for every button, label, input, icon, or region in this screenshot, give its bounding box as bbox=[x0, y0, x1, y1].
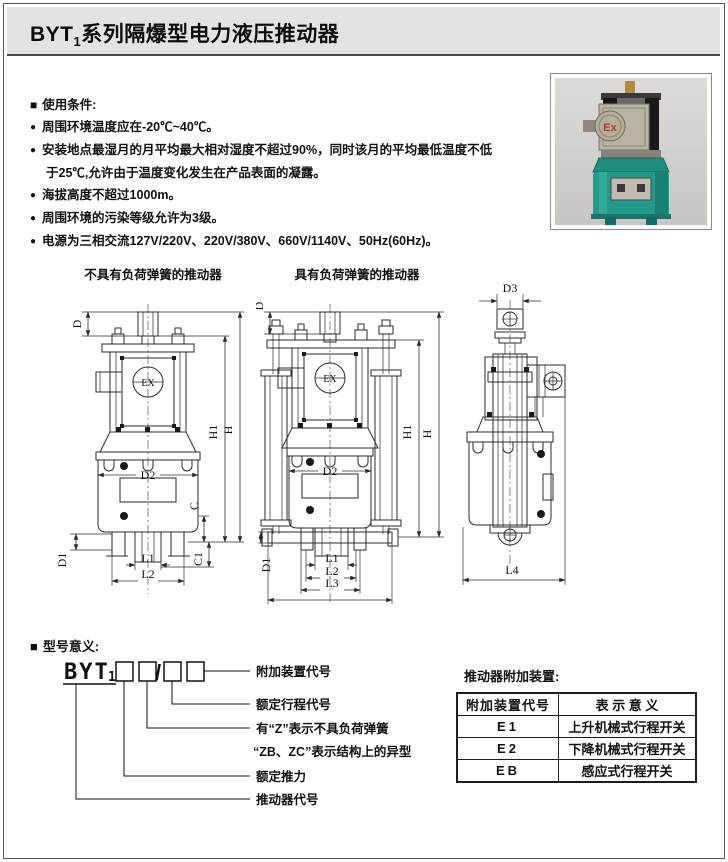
condition-item-continuation: 于25℃,允许由于温度变化发生在产品表面的凝露。 bbox=[30, 162, 555, 184]
dim-label-D3: D3 bbox=[503, 282, 518, 295]
model-label-zbzc-meaning: “ZB、ZC”表示结构上的异型 bbox=[253, 744, 412, 759]
catalog-page: BYT1系列隔爆型电力液压推动器 ■使用条件: ●周围环境温度应在-20℃~40… bbox=[0, 0, 728, 862]
model-label-stroke-code: 额定行程代号 bbox=[256, 697, 331, 712]
model-code-box bbox=[164, 662, 181, 681]
model-label-thruster-code: 推动器代号 bbox=[256, 792, 319, 807]
condition-item: ●海拔高度不超过1000m。 bbox=[30, 184, 555, 207]
dim-label-C1: C1 bbox=[191, 552, 205, 566]
drain-plug bbox=[120, 512, 128, 520]
condition-item: ●周围环境的污染等级允许为3级。 bbox=[30, 207, 555, 230]
cell-meaning: 上升机械式行程开关 bbox=[559, 716, 697, 738]
bullet-icon: ● bbox=[30, 213, 36, 224]
model-code-box bbox=[116, 662, 133, 681]
ex-circle-label: EX bbox=[323, 374, 337, 385]
diagram-with-spring: EX D2 D H H1 bbox=[256, 282, 458, 612]
dim-label-D2: D2 bbox=[323, 464, 338, 478]
accessories-section: 推动器附加装置: 附加装置代号 表 示 意 义 E1 上升机械式行程开关 E2 … bbox=[456, 666, 698, 783]
ex-marking: Ex bbox=[603, 122, 617, 134]
dim-label-D1: D1 bbox=[259, 558, 273, 573]
dim-label-L3: L3 bbox=[325, 576, 338, 590]
dim-label-D2: D2 bbox=[141, 468, 156, 482]
bullet-icon: ● bbox=[30, 145, 36, 156]
condition-item: ●周围环境温度应在-20℃~40℃。 bbox=[30, 116, 555, 139]
dim-label-L1: L1 bbox=[325, 551, 338, 565]
square-marker-icon: ■ bbox=[30, 98, 37, 112]
conditions-section: ■使用条件: ●周围环境温度应在-20℃~40℃。 ●安装地点最湿月的月平均最大… bbox=[30, 94, 555, 253]
header-meaning: 表 示 意 义 bbox=[559, 693, 697, 716]
dim-label-D1: D1 bbox=[56, 553, 69, 568]
dim-label-H1: H1 bbox=[206, 425, 220, 440]
dim-label-L1: L1 bbox=[141, 551, 154, 565]
bullet-icon: ● bbox=[30, 236, 36, 247]
cell-meaning: 下降机械式行程开关 bbox=[559, 738, 697, 760]
accessories-table: 附加装置代号 表 示 意 义 E1 上升机械式行程开关 E2 下降机械式行程开关… bbox=[456, 692, 697, 783]
product-photo: Ex bbox=[555, 78, 707, 225]
table-row: EB 感应式行程开关 bbox=[457, 760, 696, 783]
model-code-slash: / bbox=[155, 660, 161, 685]
mounting-leg bbox=[605, 217, 616, 225]
filler-plug bbox=[120, 462, 128, 470]
header-bar: BYT1系列隔爆型电力液压推动器 bbox=[7, 7, 720, 56]
condition-item: ●安装地点最湿月的月平均最大相对湿度不超过90%，同时该月的平均最低温度不低 bbox=[30, 139, 555, 162]
model-label-rated-thrust: 额定推力 bbox=[256, 769, 306, 784]
thruster-cap bbox=[593, 158, 669, 172]
diagram-no-spring: EX D2 D H H1 bbox=[56, 282, 248, 604]
dim-label-H1: H1 bbox=[400, 425, 414, 440]
model-code-box bbox=[187, 662, 204, 681]
table-row: E2 下降机械式行程开关 bbox=[457, 738, 696, 760]
dim-label-H: H bbox=[420, 429, 434, 438]
conditions-heading: ■使用条件: bbox=[30, 94, 555, 116]
brass-fitting bbox=[625, 81, 635, 94]
cell-meaning: 感应式行程开关 bbox=[559, 760, 697, 783]
square-marker-icon: ■ bbox=[30, 639, 38, 654]
model-label-z-meaning: 有“Z”表示不具负荷弹簧 bbox=[256, 721, 389, 736]
diagram-side-view: D3 bbox=[455, 282, 627, 602]
page-title: BYT1系列隔爆型电力液压推动器 bbox=[30, 18, 339, 49]
dim-label-H: H bbox=[221, 425, 235, 434]
model-code-diagram: BYT 1 / 附加装置代号 额定行程代号 有“Z”表示不具负荷弹簧 “ZB、Z… bbox=[60, 652, 450, 820]
title-suffix: 系列隔爆型电力液压推动器 bbox=[81, 23, 339, 46]
bullet-icon: ● bbox=[30, 190, 36, 201]
ex-circle-label: EX bbox=[141, 378, 155, 389]
accessories-title: 推动器附加装置: bbox=[464, 666, 698, 685]
mounting-leg bbox=[646, 217, 657, 225]
model-code-prefix: BYT bbox=[64, 660, 110, 685]
table-row: E1 上升机械式行程开关 bbox=[457, 716, 696, 738]
model-code-box bbox=[139, 662, 156, 681]
dim-label-L4: L4 bbox=[505, 563, 518, 577]
model-code-subscript: 1 bbox=[108, 670, 116, 685]
condition-item: ●电源为三相交流127V/220V、220V/380V、660V/1140V、5… bbox=[30, 230, 555, 253]
dim-label-C: C bbox=[187, 502, 201, 510]
title-prefix: BYT bbox=[30, 23, 74, 46]
cell-code: EB bbox=[457, 760, 559, 783]
dim-label-D: D bbox=[256, 301, 266, 310]
diagram-title-left: 不具有负荷弹簧的推动器 bbox=[58, 264, 248, 283]
dim-label-D: D bbox=[70, 319, 84, 328]
cell-code: E2 bbox=[457, 738, 559, 760]
cell-code: E1 bbox=[457, 716, 559, 738]
model-label-accessory-code: 附加装置代号 bbox=[256, 664, 331, 679]
diagram-title-right: 具有负荷弹簧的推动器 bbox=[262, 264, 452, 283]
bullet-icon: ● bbox=[30, 122, 36, 133]
table-header-row: 附加装置代号 表 示 意 义 bbox=[457, 693, 696, 716]
product-photo-frame: Ex bbox=[550, 73, 712, 230]
dim-label-L2: L2 bbox=[141, 567, 154, 581]
header-accessory-code: 附加装置代号 bbox=[457, 693, 559, 716]
